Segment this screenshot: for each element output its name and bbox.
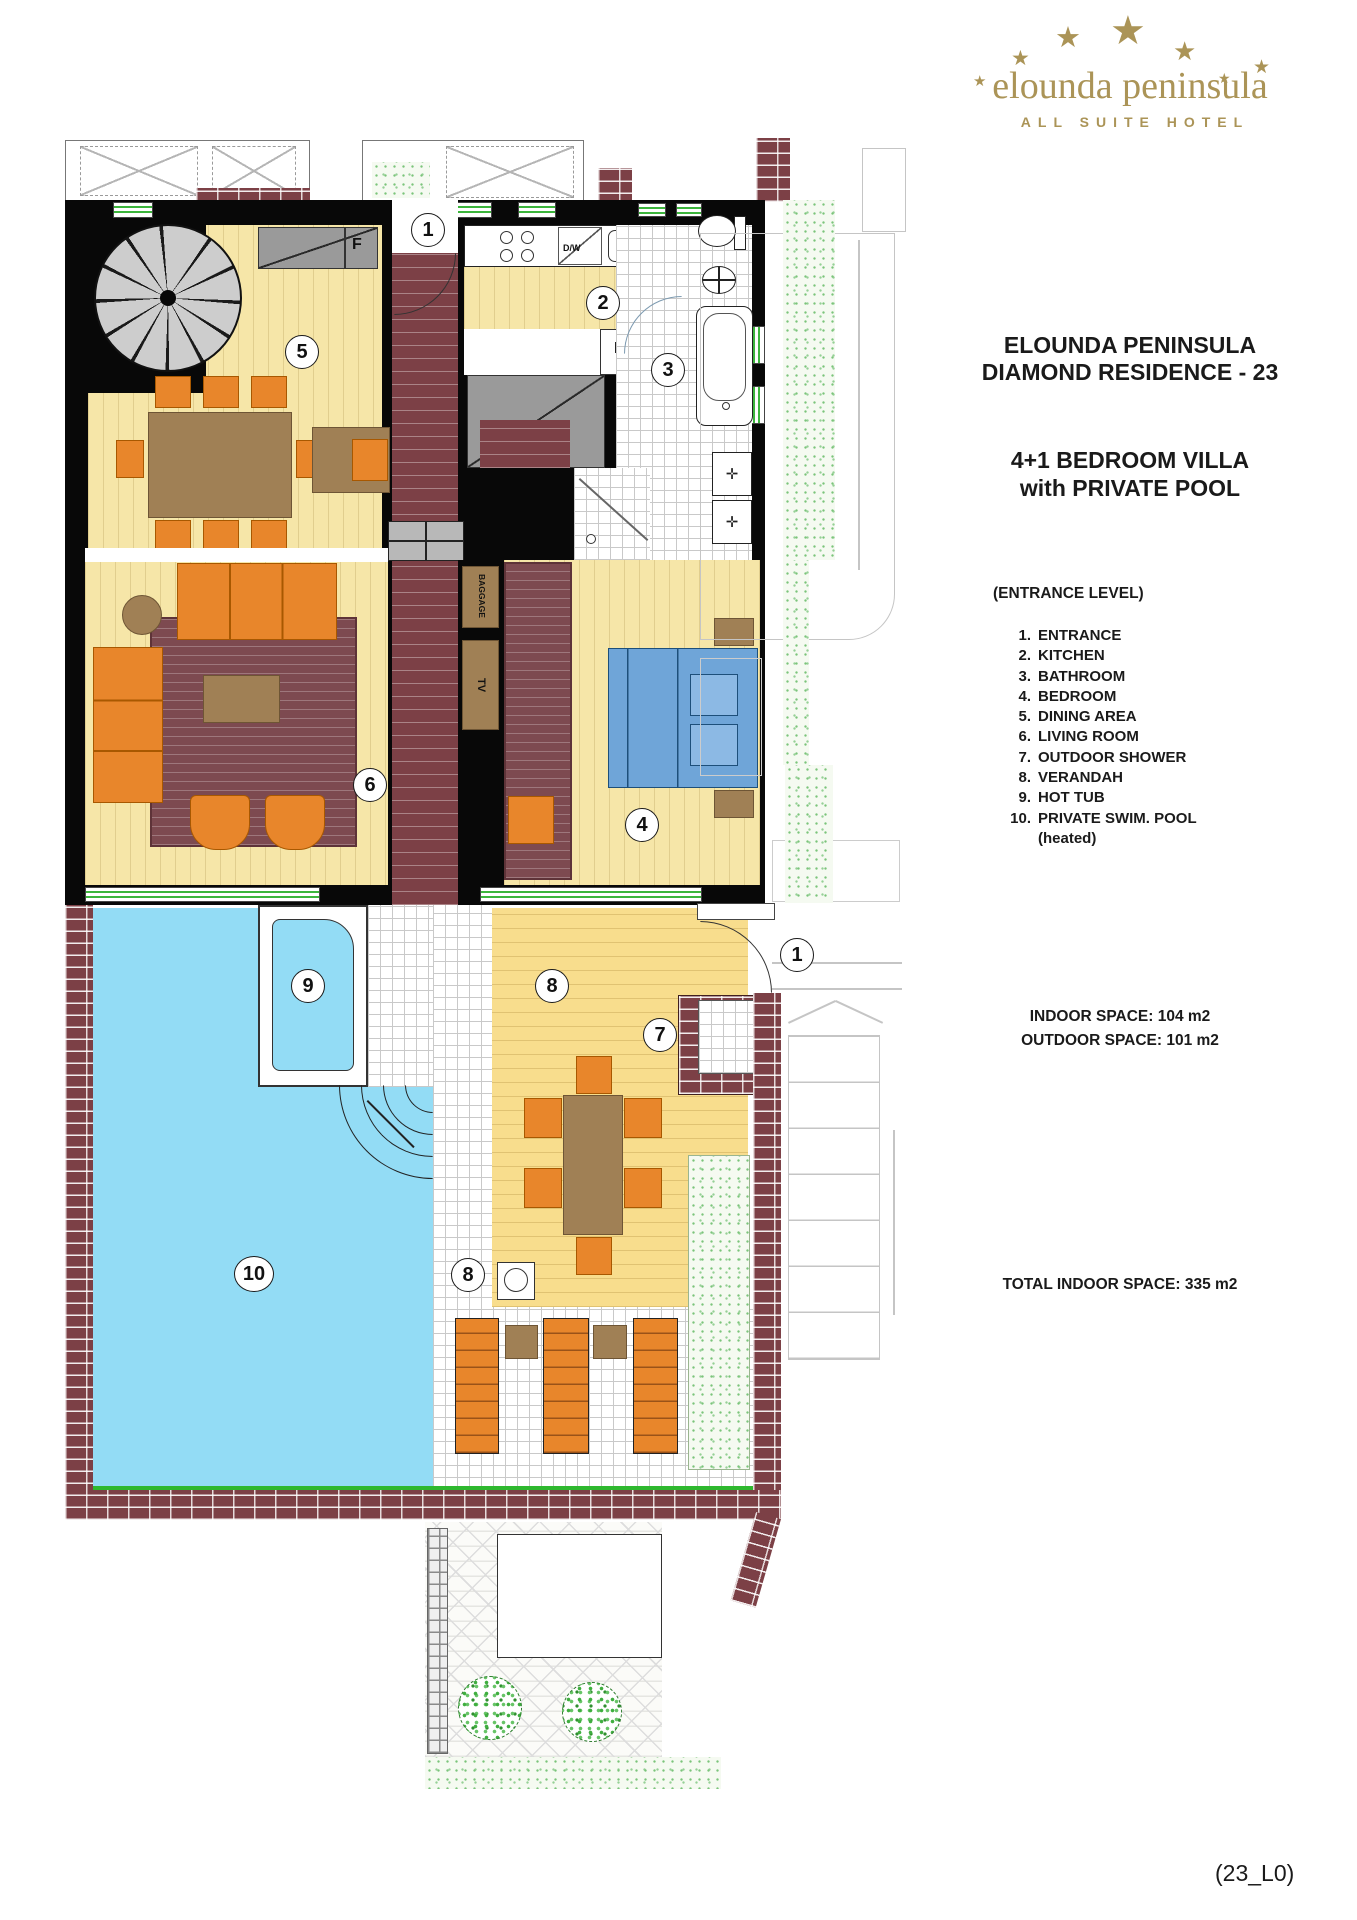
- sliding-door: [480, 887, 702, 902]
- room-label-bedroom: 4: [625, 808, 659, 842]
- grass-strip: [425, 1757, 721, 1789]
- neighbor-outline-line: [858, 240, 860, 570]
- space-summary: INDOOR SPACE: 104 m2 OUTDOOR SPACE: 101 …: [920, 1005, 1320, 1053]
- side-table-round: [122, 595, 162, 635]
- room-label-dining: 5: [285, 335, 319, 369]
- verandah-door-arc: [700, 921, 772, 993]
- outdoor-space: OUTDOOR SPACE: 101 m2: [920, 1029, 1320, 1053]
- outdoor-chair: [524, 1168, 562, 1208]
- exterior-stairs: [788, 1035, 880, 1360]
- armchair: [190, 795, 250, 850]
- dining-chair: [251, 520, 287, 550]
- sun-lounger: [455, 1318, 499, 1454]
- path-line: [772, 988, 902, 990]
- pergola-panel: [80, 146, 198, 196]
- closet-divider: [344, 227, 346, 269]
- logo-name: elounda peninsula: [935, 64, 1325, 108]
- outdoor-chair: [576, 1056, 612, 1094]
- dining-table: [148, 412, 292, 518]
- tv-label: TV: [475, 667, 487, 703]
- outdoor-chair: [524, 1098, 562, 1138]
- room-label-outdoor-shower: 7: [643, 1018, 677, 1052]
- neighbor-outline: [700, 658, 762, 776]
- page-title: ELOUNDA PENINSULA DIAMOND RESIDENCE - 23: [940, 332, 1320, 386]
- subtitle-line1: 4+1 BEDROOM VILLA: [940, 446, 1320, 474]
- garden-wall-bottom: [65, 1490, 781, 1520]
- desk-chair: [352, 439, 388, 481]
- page-subtitle: 4+1 BEDROOM VILLA with PRIVATE POOL: [940, 446, 1320, 502]
- neighbor-outline: [862, 148, 906, 232]
- legend-item: 1.ENTRANCE: [995, 626, 1325, 646]
- baggage-label: BAGGAGE: [475, 564, 487, 628]
- sun-lounger: [543, 1318, 589, 1454]
- pool-deck-tile: [368, 905, 433, 1087]
- dining-chair: [251, 376, 287, 408]
- stove-burner: [500, 249, 513, 262]
- outdoor-chair: [624, 1098, 662, 1138]
- stove-burner: [500, 231, 513, 244]
- stair-center-post: [160, 290, 176, 306]
- legend-item: 10.PRIVATE SWIM. POOL(heated): [995, 809, 1325, 850]
- garden-court: [497, 1534, 662, 1658]
- verandah-door-gap: [697, 903, 775, 920]
- garden-strip: [785, 765, 833, 903]
- garden-wall-diagonal: [731, 1512, 781, 1608]
- legend-item: 9.HOT TUB: [995, 788, 1325, 808]
- service-corridor: [480, 420, 570, 468]
- planter-patch: [372, 162, 430, 198]
- legend-item: 8.VERANDAH: [995, 768, 1325, 788]
- armchair: [265, 795, 325, 850]
- room-label-hot-tub: 9: [291, 969, 325, 1003]
- legend-list: 1.ENTRANCE 2.KITCHEN 3.BATHROOM 4.BEDROO…: [995, 626, 1325, 849]
- garden-wall-right: [753, 993, 781, 1520]
- window: [452, 202, 492, 218]
- hotel-logo: ★ ★ ★ ★ ★ ★ ★ elounda peninsula ALL SUIT…: [935, 8, 1325, 143]
- sheet-code: (23_L0): [1215, 1860, 1294, 1887]
- living-room-rug: [150, 617, 357, 847]
- star-icon: ★: [1055, 20, 1081, 55]
- stair-peak-line: [788, 1000, 836, 1024]
- garden-wall-left: [65, 905, 93, 1520]
- room-label-entrance: 1: [411, 213, 445, 247]
- sliding-door: [85, 887, 320, 902]
- window: [676, 203, 702, 217]
- stove-burner: [521, 249, 534, 262]
- lounger-side-table: [505, 1325, 538, 1359]
- sofa: [93, 647, 163, 803]
- brick-corner-block: [756, 138, 790, 202]
- legend-item-note: (heated): [1038, 829, 1325, 849]
- nightstand: [714, 790, 754, 818]
- shower-floor: [574, 468, 650, 560]
- pergola-panel: [446, 146, 574, 198]
- room-label-living: 6: [353, 768, 387, 802]
- closet-f-label: F: [352, 236, 362, 254]
- legend-item: 6.LIVING ROOM: [995, 727, 1325, 747]
- legend-item: 7.OUTDOOR SHOWER: [995, 748, 1325, 768]
- side-table-circle: [504, 1268, 528, 1292]
- bush: [562, 1682, 622, 1742]
- fireplace: [388, 521, 464, 561]
- stove-burner: [521, 231, 534, 244]
- shower-drain: [586, 534, 596, 544]
- garden-strip: [783, 200, 835, 560]
- logo-subtitle: ALL SUITE HOTEL: [935, 114, 1335, 130]
- dining-chair: [155, 376, 191, 408]
- dining-chair: [203, 376, 239, 408]
- entrance-corridor-floor: [392, 253, 458, 905]
- garden-pillar: [427, 1528, 448, 1754]
- legend-item: 5.DINING AREA: [995, 707, 1325, 727]
- star-icon: ★: [1110, 8, 1146, 54]
- dining-chair: [203, 520, 239, 550]
- legend-item: 4.BEDROOM: [995, 687, 1325, 707]
- room-label-verandah-2: 8: [451, 1258, 485, 1292]
- lounger-side-table: [593, 1325, 627, 1359]
- garden-strip: [783, 560, 809, 765]
- legend-item: 2.KITCHEN: [995, 646, 1325, 666]
- indoor-space: INDOOR SPACE: 104 m2: [920, 1005, 1320, 1029]
- star-icon: ★: [1173, 36, 1196, 67]
- dishwasher-label: D/W: [563, 243, 581, 253]
- bush: [458, 1676, 522, 1740]
- room-label-entrance-side: 1: [780, 938, 814, 972]
- outdoor-chair: [576, 1237, 612, 1275]
- window: [518, 202, 556, 218]
- room-label-pool: 10: [234, 1256, 274, 1292]
- room-label-bathroom: 3: [651, 353, 685, 387]
- outdoor-chair: [624, 1168, 662, 1208]
- total-space: TOTAL INDOOR SPACE: 335 m2: [920, 1276, 1320, 1294]
- bedroom-ottoman: [508, 796, 554, 844]
- title-line1: ELOUNDA PENINSULA: [940, 332, 1320, 359]
- dining-chair: [155, 520, 191, 550]
- window: [638, 203, 666, 217]
- dining-chair: [116, 440, 144, 478]
- room-divider-strip: [85, 548, 388, 562]
- outdoor-table: [563, 1095, 623, 1235]
- floor-plan-page: ★ ★ ★ ★ ★ ★ ★ elounda peninsula ALL SUIT…: [0, 0, 1357, 1920]
- title-line2: DIAMOND RESIDENCE - 23: [940, 359, 1320, 386]
- sun-lounger: [633, 1318, 678, 1454]
- legend-heading: (ENTRANCE LEVEL): [993, 585, 1144, 603]
- subtitle-line2: with PRIVATE POOL: [940, 474, 1320, 502]
- room-label-verandah: 8: [535, 969, 569, 1003]
- outdoor-shower-floor: [698, 1000, 756, 1074]
- legend-item: 3.BATHROOM: [995, 667, 1325, 687]
- stair-peak-line: [835, 1000, 883, 1024]
- path-line: [893, 1130, 895, 1315]
- room-label-kitchen: 2: [586, 286, 620, 320]
- garden-strip: [688, 1155, 750, 1470]
- coffee-table: [203, 675, 280, 723]
- window: [113, 202, 153, 218]
- sofa: [177, 563, 337, 640]
